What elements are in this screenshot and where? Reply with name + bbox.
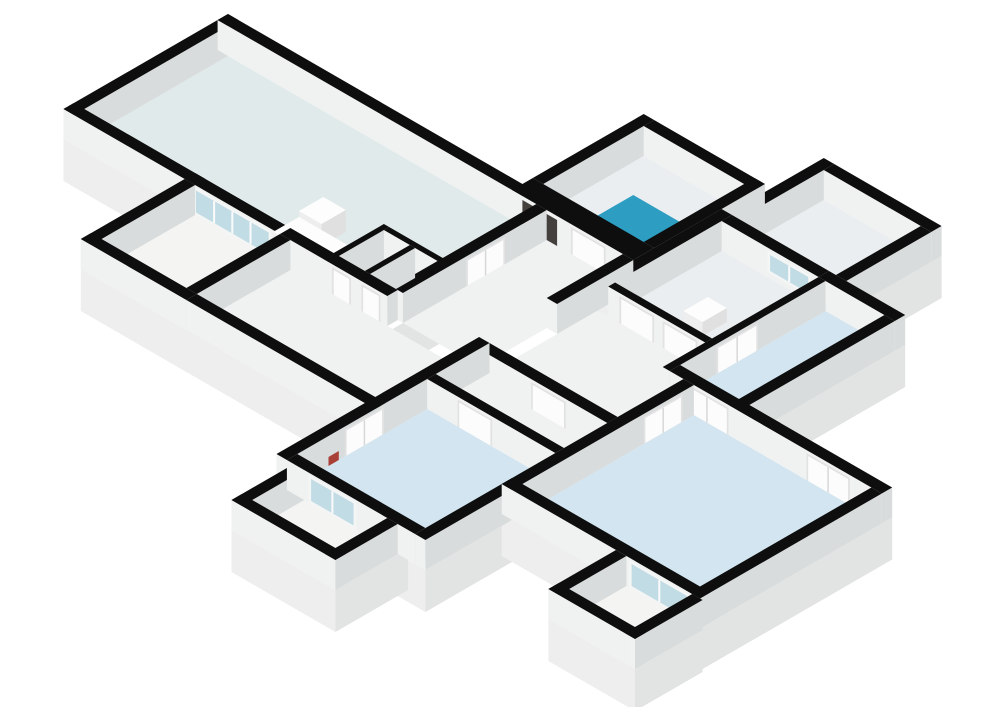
bedroom1-ne-wall-se-face [882,488,892,524]
closet-front-wall-se-face [387,290,397,326]
storage-ne-wall-se-face [931,226,941,262]
balcony-bl-e-wall-sw-face [325,554,335,590]
balcony-br-e-wall-sw-face [625,633,635,669]
bedroom2-e-wall-sw-face [415,534,425,570]
floorplan-3d-render [0,0,1000,707]
bedroom3-ne-wall-se-face [895,315,905,351]
floorplan-3d-stage [0,0,1000,707]
hallway-e-wall-sw-face [547,298,557,334]
